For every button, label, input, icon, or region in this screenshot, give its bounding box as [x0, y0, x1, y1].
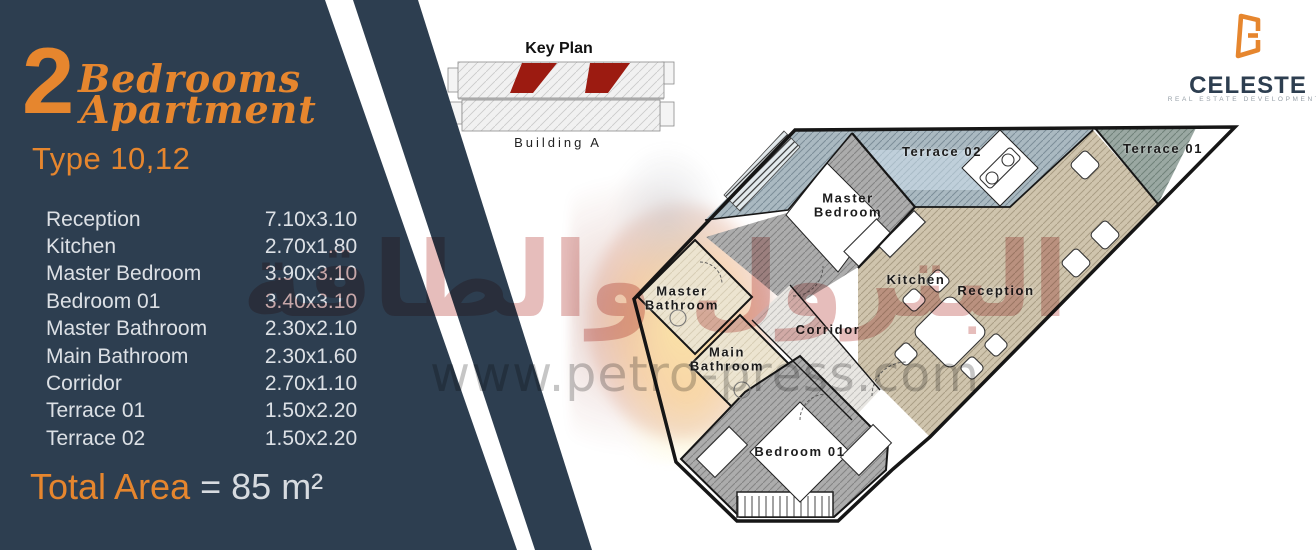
- brochure-page: 2 Bedrooms Apartment Type 10,12 Receptio…: [0, 0, 1316, 550]
- watermark-url: www.petro-press.com: [430, 346, 980, 403]
- room-dimension: 2.70x1.10: [261, 372, 361, 396]
- table-row: Corridor2.70x1.10: [46, 370, 361, 397]
- bedroom01-closet: [737, 492, 833, 517]
- apartment-type: Type 10,12: [32, 141, 190, 177]
- table-row: Terrace 021.50x2.20: [46, 425, 361, 452]
- key-plan-building-label: Building A: [514, 135, 602, 150]
- celeste-logo-icon: [1238, 16, 1258, 56]
- label-bedroom01: Bedroom 01: [754, 445, 845, 459]
- room-name: Terrace 02: [46, 427, 261, 451]
- bedroom-count: 2: [22, 34, 74, 128]
- key-plan-drawing: [448, 62, 674, 131]
- brand-tagline: REAL ESTATE DEVELOPMENTS: [1168, 96, 1316, 103]
- room-dimension: 1.50x2.20: [261, 399, 361, 423]
- room-dimension: 1.50x2.20: [261, 427, 361, 451]
- label-terrace01: Terrace 01: [1123, 142, 1203, 156]
- total-area-value: = 85 m²: [200, 466, 323, 507]
- key-plan-title: Key Plan: [525, 40, 593, 58]
- table-row: Terrace 011.50x2.20: [46, 398, 361, 425]
- total-area-label: Total Area: [30, 466, 190, 507]
- title-apartment: Apartment: [80, 91, 317, 129]
- total-area: Total Area = 85 m²: [30, 466, 323, 508]
- room-name: Corridor: [46, 372, 261, 396]
- label-terrace02: Terrace 02: [902, 145, 982, 159]
- arabic-watermark-text: البترول والطاقة: [190, 208, 1120, 353]
- room-name: Terrace 01: [46, 399, 261, 423]
